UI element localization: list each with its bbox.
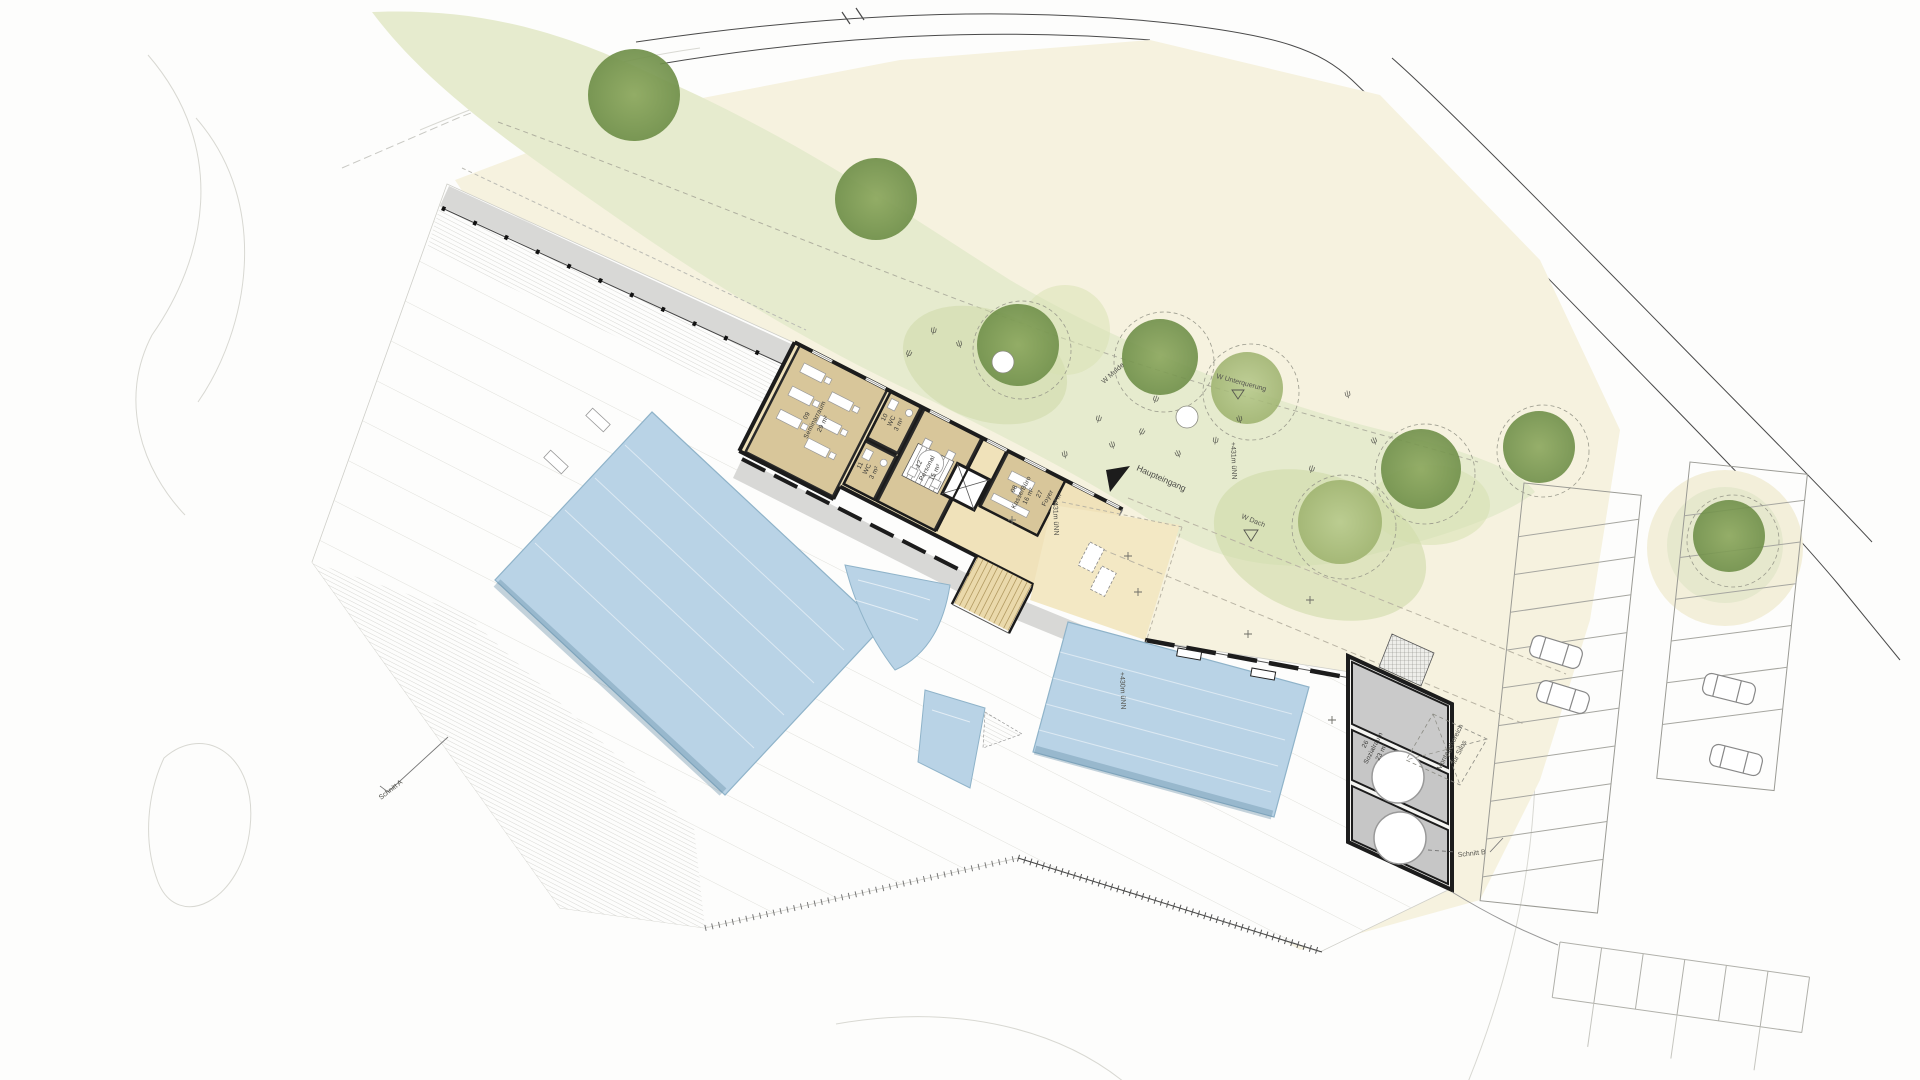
parking-grid-bottom	[1546, 942, 1809, 1076]
elevation-label: +430m üNN	[1118, 672, 1126, 710]
water-tank-2	[1374, 812, 1426, 864]
elevation-label: +431m üNN	[1051, 498, 1059, 536]
tree	[1122, 319, 1198, 395]
tree	[977, 304, 1059, 386]
tree	[588, 49, 680, 141]
shrub	[1176, 406, 1198, 428]
tree	[1693, 500, 1765, 572]
site-plan-drawing: 09 Seminarraum 29 m² 10 WC 3 m² 11 WC 3 …	[0, 0, 1920, 1080]
section-a-label: Schnitt A	[378, 779, 404, 802]
parked-cars	[1528, 634, 1764, 777]
section-marker-a: Schnitt A	[378, 737, 448, 802]
tree	[1381, 429, 1461, 509]
site-plan-page: 09 Seminarraum 29 m² 10 WC 3 m² 11 WC 3 …	[0, 0, 1920, 1080]
elevation-label: +431m üNN	[1229, 442, 1237, 480]
car	[1701, 672, 1757, 706]
tree	[835, 158, 917, 240]
shrub	[992, 351, 1014, 373]
car	[1708, 743, 1764, 777]
tree	[1503, 411, 1575, 483]
tree	[1298, 480, 1382, 564]
